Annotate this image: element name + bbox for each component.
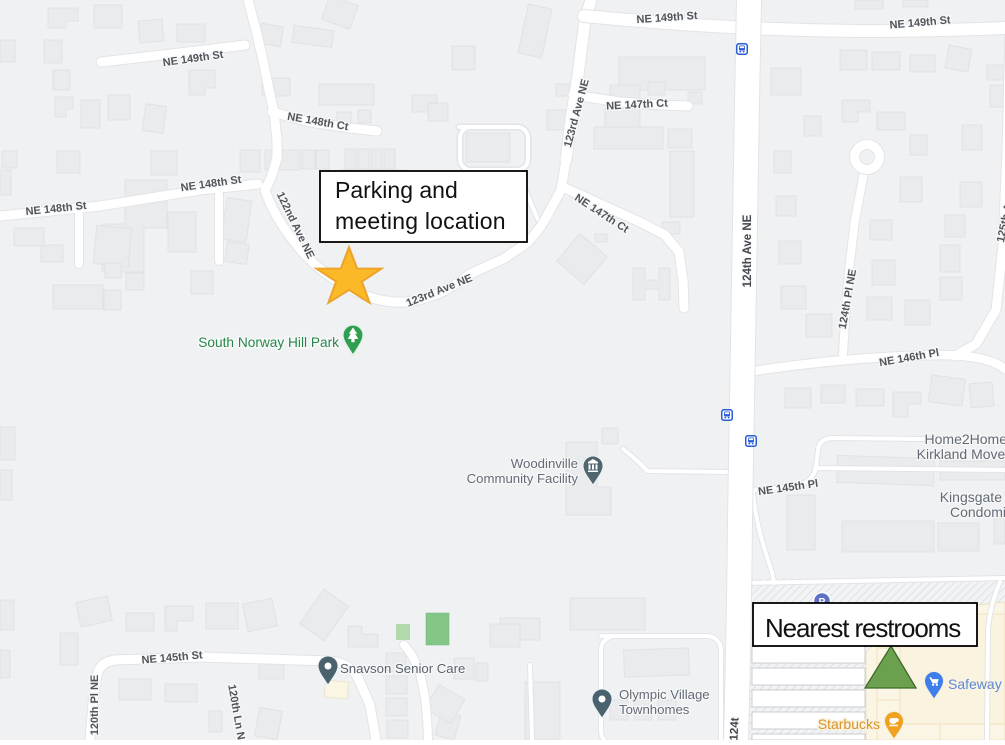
svg-text:meeting location: meeting location [335, 208, 506, 234]
svg-text:Nearest restrooms: Nearest restrooms [765, 613, 961, 643]
svg-text:Starbucks: Starbucks [818, 716, 880, 732]
svg-text:Snavson Senior Care: Snavson Senior Care [340, 661, 465, 676]
svg-text:Safeway: Safeway [948, 676, 1002, 692]
svg-text:Townhomes: Townhomes [619, 702, 690, 717]
svg-text:South Norway Hill Park: South Norway Hill Park [198, 335, 339, 350]
svg-text:124th Ave NE: 124th Ave NE [742, 214, 754, 287]
svg-text:Olympic Village: Olympic Village [619, 687, 710, 702]
svg-text:Community Facility: Community Facility [467, 471, 579, 486]
svg-text:Home2Home: Home2Home [925, 431, 1005, 447]
svg-text:Woodinville: Woodinville [511, 456, 578, 471]
svg-text:124t: 124t [728, 717, 741, 740]
svg-text:Kirkland Mover: Kirkland Mover [917, 446, 1005, 462]
svg-text:Parking and: Parking and [335, 177, 458, 203]
svg-text:Kingsgate: Kingsgate [940, 489, 1002, 505]
svg-text:120th Pl NE: 120th Pl NE [89, 675, 101, 736]
svg-text:Condomi: Condomi [950, 504, 1005, 520]
